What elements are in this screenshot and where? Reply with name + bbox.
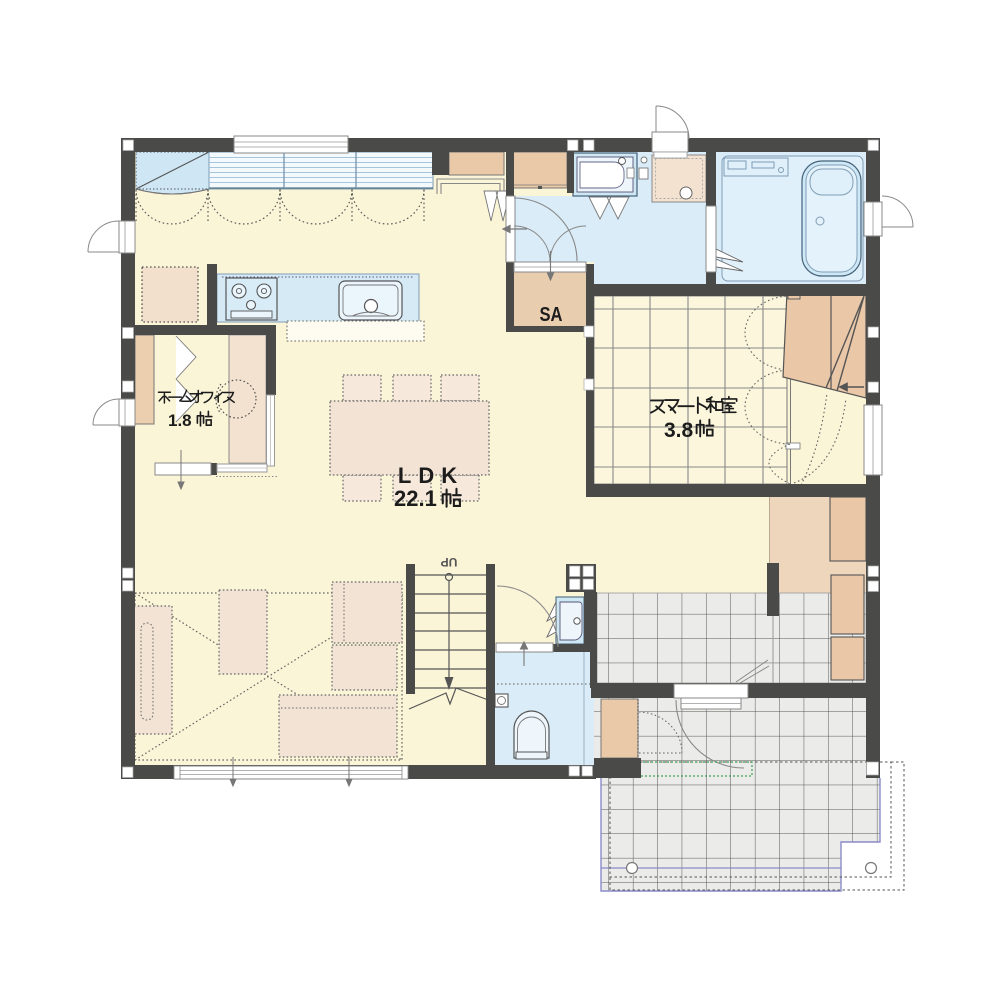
svg-text:SA: SA bbox=[540, 304, 563, 326]
svg-text:22.1: 22.1 bbox=[394, 486, 437, 511]
svg-text:3.8: 3.8 bbox=[664, 419, 694, 442]
svg-text:1.8: 1.8 bbox=[168, 411, 192, 430]
svg-text:LDK: LDK bbox=[398, 463, 464, 488]
svg-text:UP: UP bbox=[441, 555, 458, 569]
